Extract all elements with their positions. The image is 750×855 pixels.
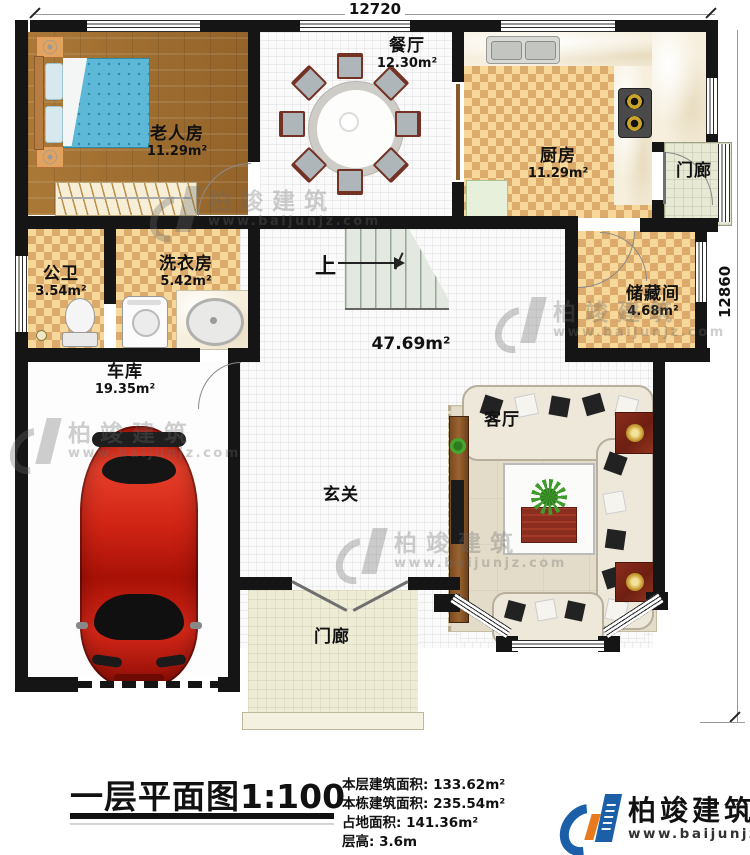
wall-storage-bottom	[565, 348, 710, 362]
kitchen-dining-door-leaf	[456, 84, 460, 180]
window-bath-left	[15, 256, 28, 332]
stat-footprint-area: 占地面积: 141.36m²	[342, 814, 505, 833]
toilet	[60, 296, 98, 348]
window-bedroom-top	[87, 20, 200, 32]
room-label-porch-top: 门廊	[676, 163, 712, 181]
wall-bedroom-right	[248, 20, 260, 162]
sofa-pillow	[605, 529, 626, 550]
car-mirror	[76, 622, 88, 629]
dimension-line-right-foot	[700, 722, 745, 723]
dimension-line-right	[737, 30, 738, 722]
floor-plan-page: 老人房 11.29m² 餐厅 12.30m² 厨房 11.29m² 门廊 储藏间…	[0, 0, 750, 855]
room-label-dining: 餐厅 12.30m²	[377, 38, 437, 71]
wall-front-left	[228, 577, 292, 590]
brand-url: www.baijunjz.com	[628, 826, 750, 842]
bay-window-center	[512, 640, 604, 651]
wall-bath-bottom	[15, 348, 200, 362]
title-underline-thick	[70, 813, 334, 819]
burner	[625, 116, 644, 131]
stairs-up-arrow-line	[338, 262, 394, 264]
washer-panel	[127, 300, 161, 305]
garage-door-dashed	[78, 681, 218, 688]
watermark: 柏竣建筑www.baijunjz.com	[12, 418, 241, 468]
watermark: 柏竣建筑www.baijunjz.com	[338, 528, 567, 578]
sofa-pillow	[548, 395, 570, 417]
stat-storey-height: 层高: 3.6m	[342, 833, 505, 852]
side-table-lamp	[626, 424, 644, 442]
room-label-living: 客厅	[484, 412, 520, 430]
wall-kitchen-porch-b	[652, 200, 664, 232]
wall-bath-divider	[104, 228, 116, 304]
nightstand	[36, 36, 64, 58]
kitchen-counter-corner	[652, 32, 706, 142]
room-label-laundry: 洗衣房 5.42m²	[159, 256, 213, 289]
stats-block: 本层建筑面积: 133.62m² 本栋建筑面积: 235.54m² 占地面积: …	[342, 776, 505, 852]
dining-chair	[337, 53, 363, 79]
washer-door	[132, 309, 160, 337]
sofa-pillow	[504, 600, 526, 622]
bed-headboard	[34, 56, 44, 150]
porch-bottom-floor	[248, 590, 418, 712]
plant	[531, 479, 567, 515]
brand-name: 柏竣建筑	[628, 796, 750, 825]
sink-basin	[491, 41, 522, 60]
bed-sheet-fold	[63, 58, 91, 146]
burner	[625, 94, 644, 109]
plan-title-text: 一层平面图	[70, 770, 240, 818]
porch-step	[242, 712, 424, 730]
room-label-kitchen: 厨房 11.29m²	[528, 148, 588, 181]
porch-top-door-leaf	[663, 152, 666, 204]
wall-garage-bottom-left	[15, 677, 78, 692]
stat-floor-area: 本层建筑面积: 133.62m²	[342, 776, 505, 795]
sofa-pillow	[582, 393, 606, 417]
basin-drain	[210, 317, 217, 324]
bed	[34, 56, 150, 148]
wall-kitchen-left-a	[452, 20, 464, 82]
watermark: 柏竣建筑www.baijunjz.com	[152, 186, 381, 236]
sofa-pillow	[603, 451, 627, 475]
dining-chair	[395, 111, 421, 137]
wall-kitchen-porch-a	[652, 142, 664, 152]
toilet-tank	[62, 332, 98, 347]
room-label-entry: 玄关	[323, 487, 359, 505]
toilet-bowl	[65, 298, 95, 334]
bed-pillow	[45, 63, 63, 100]
porch-top-edge	[718, 144, 730, 222]
laundry-basin	[186, 298, 244, 346]
car-windshield	[94, 594, 184, 640]
dimension-tick	[729, 711, 740, 722]
room-label-garage: 车库 19.35m²	[95, 364, 155, 397]
side-table	[615, 412, 655, 454]
window-dining-top	[300, 20, 410, 32]
dining-chair	[279, 111, 305, 137]
wall-stub-laundry	[240, 348, 260, 362]
window-kitchen-top	[501, 20, 615, 32]
greatroom-area-label: 47.69m²	[372, 334, 451, 354]
wall-garage-bottom-right	[218, 677, 240, 692]
watermark-logo-icon	[12, 418, 58, 468]
wall-laundry-right	[248, 228, 260, 348]
tv-cabinet-plant	[450, 438, 466, 454]
room-label-bedroom: 老人房 11.29m²	[147, 126, 207, 159]
plan-title: 一层平面图 1:100	[70, 770, 345, 818]
watermark-logo-icon	[338, 528, 384, 578]
sofa-pillow	[534, 598, 557, 621]
window-storage-right	[695, 242, 707, 302]
dining-table-center	[339, 112, 359, 132]
brand-block: 柏竣建筑 www.baijunjz.com	[562, 792, 750, 846]
room-label-bath: 公卫 3.54m²	[35, 266, 86, 299]
watermark: 柏竣建筑www.baijunjz.com	[497, 297, 726, 347]
wall-living-right	[653, 362, 665, 594]
stairs-up-label: 上	[315, 250, 336, 280]
room-label-porch-bottom: 门廊	[314, 629, 350, 647]
bath-drain	[36, 330, 47, 341]
bed-pillow	[45, 106, 63, 143]
plan-scale: 1:100	[240, 777, 345, 816]
kitchen-sink	[486, 36, 560, 64]
washing-machine	[122, 296, 168, 348]
dimension-tick	[29, 7, 40, 18]
wall-kitchen-left-b	[452, 182, 464, 229]
car-mirror	[190, 622, 202, 629]
sink-basin	[525, 41, 556, 60]
stove	[618, 88, 652, 138]
window-right-upper	[706, 78, 718, 134]
side-table-lamp	[626, 573, 644, 591]
stat-building-area: 本栋建筑面积: 235.54m²	[342, 795, 505, 814]
watermark-logo-icon	[152, 186, 198, 236]
sofa-pillow	[564, 600, 585, 621]
dimension-top-value: 12720	[345, 0, 405, 18]
watermark-logo-icon	[497, 297, 543, 347]
dimension-tick	[705, 7, 716, 18]
sofa-pillow	[602, 490, 626, 514]
title-underline-thin	[70, 823, 334, 825]
brand-logo-icon	[562, 792, 620, 846]
wall-front-right	[408, 577, 460, 590]
